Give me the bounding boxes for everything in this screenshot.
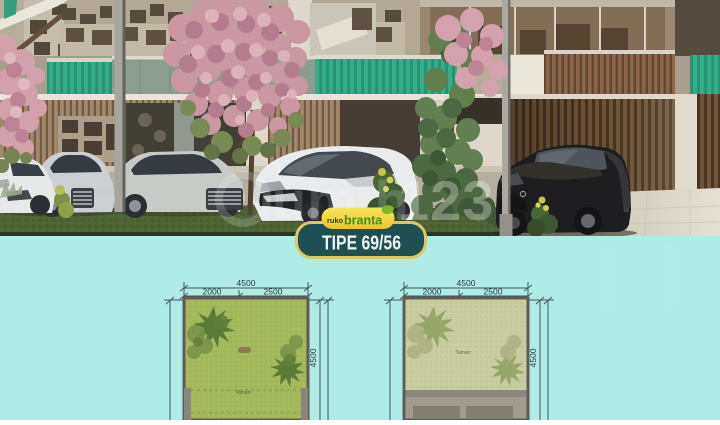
svg-text:Taman: Taman (455, 350, 470, 356)
svg-text:4500: 4500 (457, 278, 476, 288)
svg-text:2000: 2000 (203, 287, 222, 297)
svg-text:4500: 4500 (237, 278, 256, 288)
svg-text:ruko: ruko (327, 216, 344, 225)
svg-text:Taman: Taman (235, 390, 250, 396)
svg-text:2500: 2500 (264, 287, 283, 297)
svg-text:2000: 2000 (423, 287, 442, 297)
svg-text:2500: 2500 (484, 287, 503, 297)
svg-text:TIPE 69/56: TIPE 69/56 (322, 232, 401, 255)
svg-text:branta: branta (344, 214, 383, 228)
